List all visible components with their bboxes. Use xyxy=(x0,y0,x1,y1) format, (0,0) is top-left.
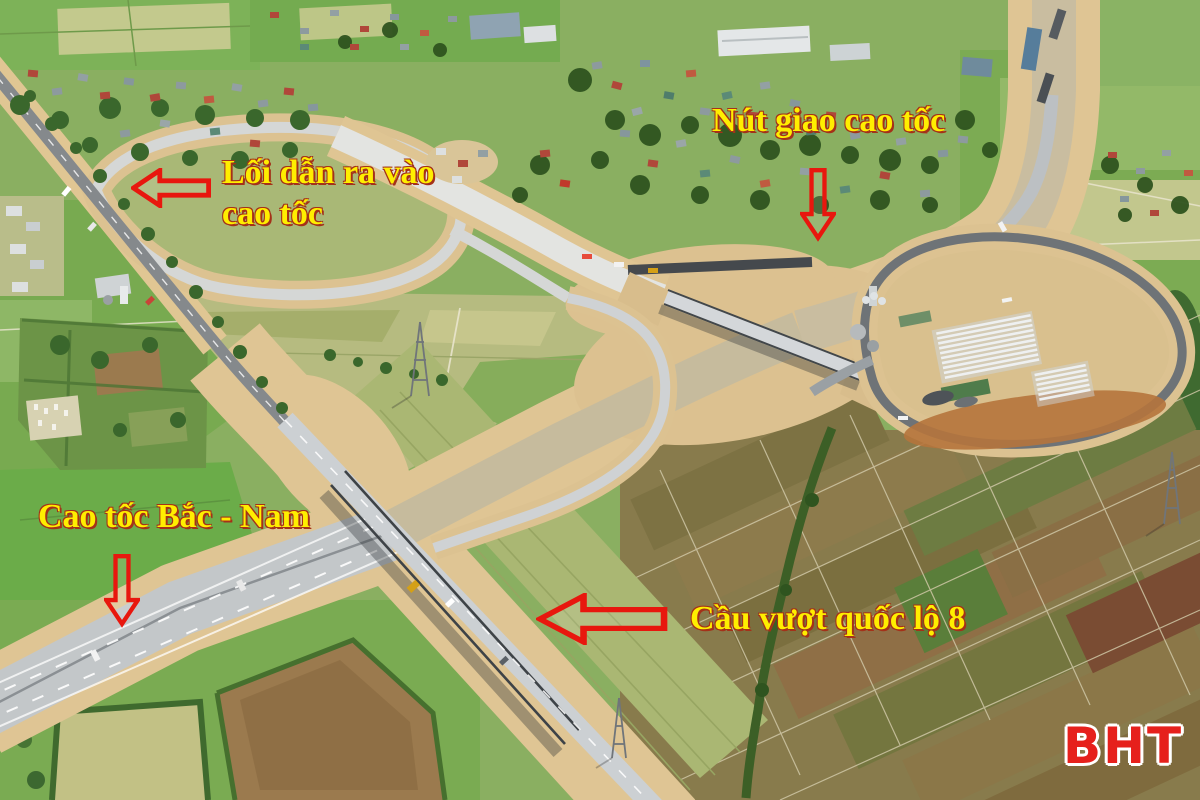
annotation-ramp-label: Lối dẫn ra vào cao tốc xyxy=(222,152,435,234)
bht-watermark-logo: BHT xyxy=(1063,716,1183,776)
annotation-ramp-line2: cao tốc xyxy=(222,193,435,234)
annotation-interchange-label: Nút giao cao tốc xyxy=(712,100,945,141)
arrow-down-icon xyxy=(104,544,140,636)
annotation-overpass-label: Cầu vượt quốc lộ 8 xyxy=(690,598,965,639)
arrow-down-icon xyxy=(800,162,836,246)
arrow-left-icon xyxy=(536,593,668,645)
hamlet-near-loop xyxy=(426,140,498,184)
annotation-expressway-label: Cao tốc Bắc - Nam xyxy=(38,496,310,537)
aerial-photo-scene xyxy=(0,0,1200,800)
annotated-aerial-photo: Lối dẫn ra vào cao tốc Nút giao cao tốc … xyxy=(0,0,1200,800)
annotation-ramp-line1: Lối dẫn ra vào xyxy=(222,152,435,193)
arrow-left-icon xyxy=(131,168,211,208)
